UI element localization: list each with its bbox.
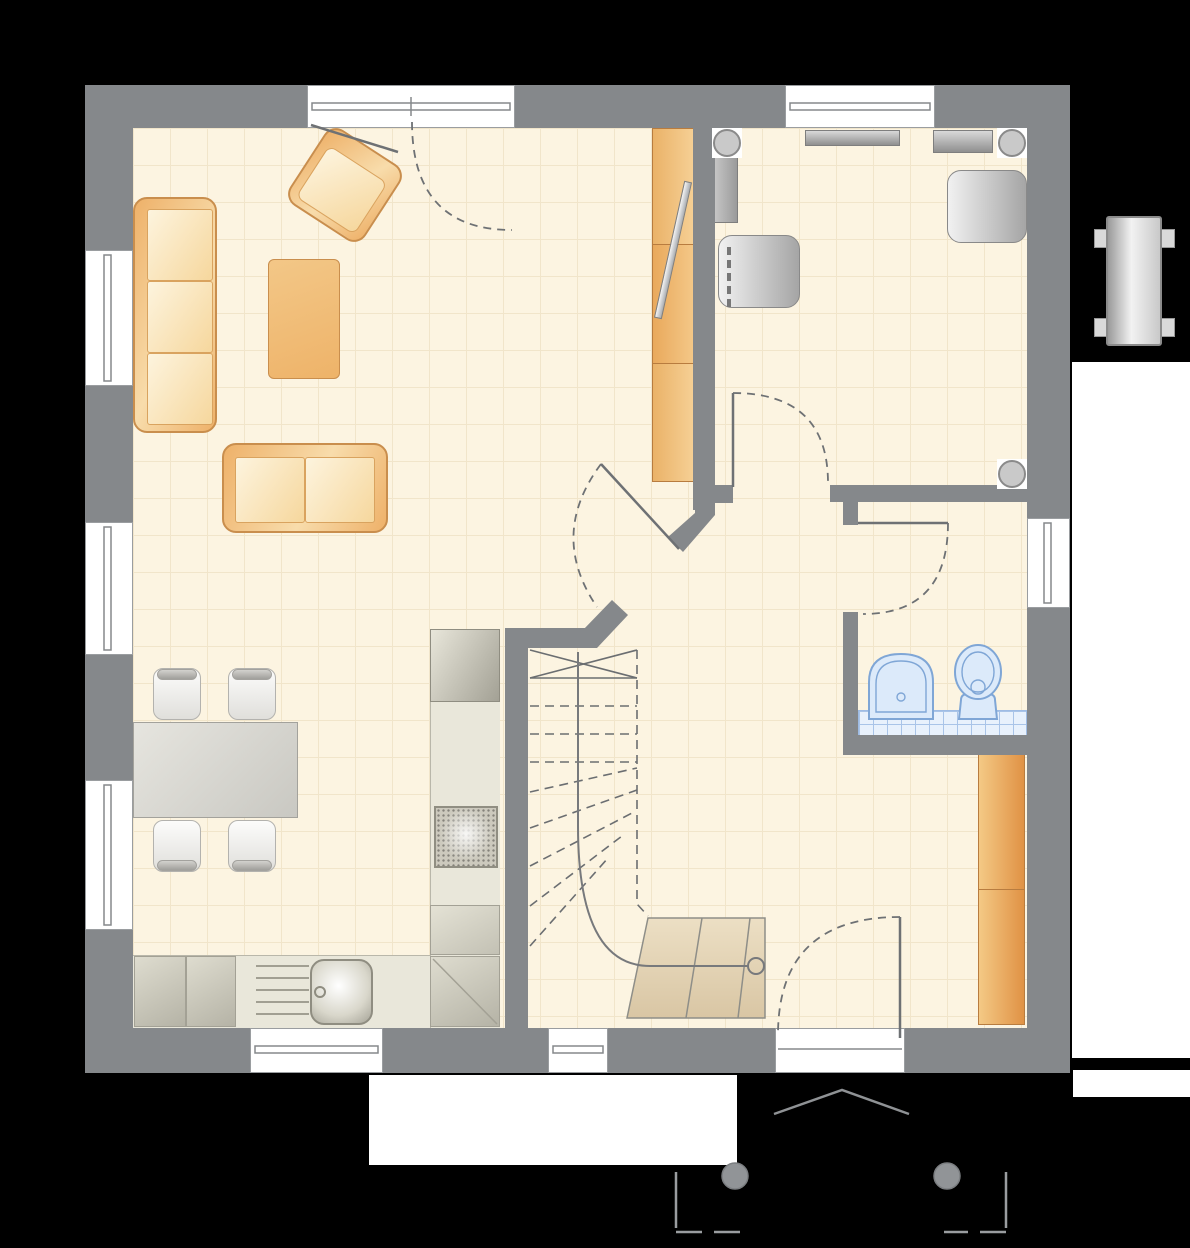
sofa-3-seat — [133, 197, 217, 433]
window-left-1 — [85, 250, 133, 386]
porch-column — [722, 1163, 748, 1189]
base-cabinet — [430, 905, 500, 955]
wardrobe-section — [979, 890, 1024, 1024]
corner-post-pad — [997, 459, 1027, 489]
sofa-cushion — [147, 209, 213, 281]
sofa-cushions — [235, 457, 375, 523]
dining-chair — [228, 820, 276, 872]
kitchen-sink — [310, 959, 373, 1025]
base-cabinet — [134, 956, 186, 1027]
chimney-unit — [1106, 216, 1162, 346]
sofa-2-seat — [222, 443, 388, 533]
cooktop — [434, 806, 498, 868]
wall-living-bedroom-divider — [693, 128, 715, 510]
upholstered-chair — [718, 235, 800, 308]
upholstered-chair — [947, 170, 1027, 243]
rear-path — [1073, 1070, 1190, 1097]
corner-cabinet — [430, 956, 500, 1027]
sofa-cushion — [147, 281, 213, 353]
wall-bathroom-bottom — [843, 735, 1027, 755]
window-bottom-stairs — [548, 1028, 608, 1073]
tiled-splash-strip — [858, 710, 1027, 737]
coffee-table — [268, 259, 340, 379]
sideboard-section — [653, 364, 694, 481]
chimney-tab — [1160, 229, 1175, 248]
base-cabinet — [186, 956, 236, 1027]
sofa-cushions — [147, 209, 213, 425]
dining-chair — [153, 820, 201, 872]
porch-outline-right — [944, 1172, 1006, 1232]
corner-post-pad — [712, 128, 742, 158]
chimney-tab — [1160, 318, 1175, 337]
wall-bathroom-left-stub — [843, 502, 858, 525]
porch-column — [934, 1163, 960, 1189]
dining-chair — [153, 668, 201, 720]
floor-plan — [0, 0, 1190, 1248]
dining-table — [133, 722, 298, 818]
tall-appliance-fridge — [430, 629, 500, 702]
wardrobe-section — [979, 754, 1024, 890]
window-top-bedroom — [785, 85, 935, 128]
terrace-slab — [369, 1075, 737, 1165]
sideboard — [933, 130, 993, 153]
wall-bathroom-left — [843, 612, 858, 740]
sofa-cushion — [305, 457, 375, 523]
terrace-french-door-opening — [307, 85, 515, 128]
garden-white-strip — [1072, 362, 1190, 1058]
wall-divider-arm — [693, 485, 733, 503]
window-left-3 — [85, 780, 133, 930]
canopy-chevron — [774, 1090, 909, 1114]
porch-outline-left — [676, 1172, 740, 1232]
sofa-cushion — [235, 457, 305, 523]
radiator-shelf — [805, 130, 900, 146]
window-bottom-kitchen — [250, 1028, 383, 1073]
sofa-cushion — [147, 353, 213, 425]
window-left-2 — [85, 522, 133, 655]
wall-stair-left — [505, 628, 528, 1028]
wardrobe — [978, 753, 1025, 1025]
wall-stair-top — [505, 628, 587, 648]
window-right-bathroom — [1027, 518, 1070, 608]
corner-post-pad — [997, 128, 1027, 158]
dining-chair — [228, 668, 276, 720]
entrance-door-threshold — [775, 1028, 905, 1073]
